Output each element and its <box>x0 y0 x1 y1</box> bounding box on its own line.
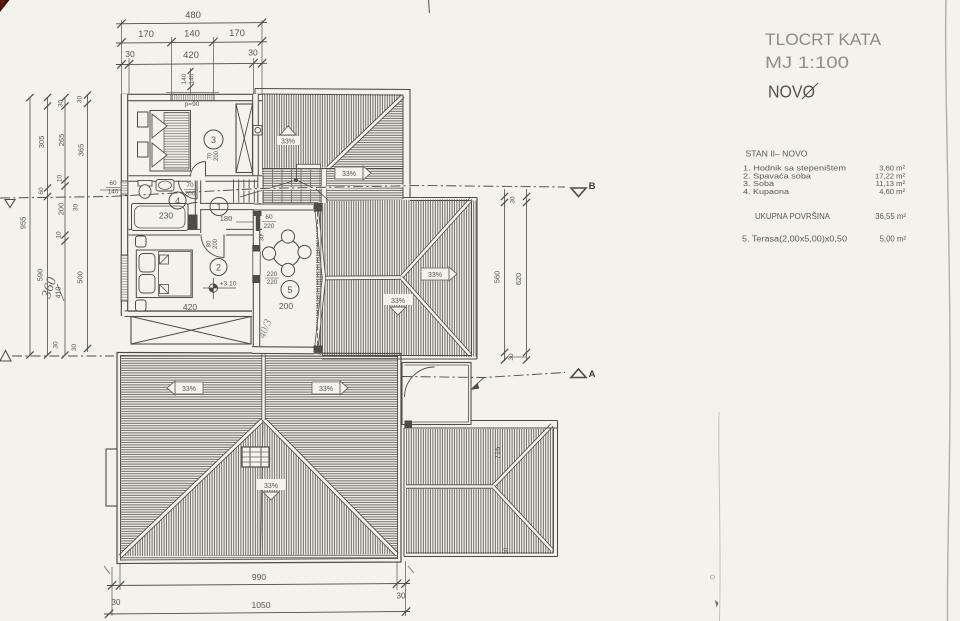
svg-text:STAN II– NOVO: STAN II– NOVO <box>746 150 808 159</box>
svg-text:590: 590 <box>36 269 45 282</box>
svg-text:p=90: p=90 <box>185 101 200 108</box>
svg-text:420: 420 <box>183 50 199 61</box>
svg-text:30: 30 <box>53 341 60 349</box>
svg-text:10: 10 <box>57 175 64 183</box>
svg-text:+3.10: +3.10 <box>219 281 236 288</box>
svg-text:955: 955 <box>19 217 28 230</box>
svg-text:480: 480 <box>185 10 201 21</box>
svg-text:5,00 m²: 5,00 m² <box>880 235 907 244</box>
svg-text:170: 170 <box>138 29 154 40</box>
svg-text:500: 500 <box>76 271 85 284</box>
svg-text:30: 30 <box>510 196 517 204</box>
svg-text:70: 70 <box>186 182 194 189</box>
svg-text:265: 265 <box>57 134 66 147</box>
svg-text:305: 305 <box>37 136 46 149</box>
svg-text:60: 60 <box>265 214 273 221</box>
svg-text:200: 200 <box>57 203 66 216</box>
svg-text:560: 560 <box>493 271 502 284</box>
svg-text:200: 200 <box>213 238 219 249</box>
svg-text:180: 180 <box>220 214 233 223</box>
svg-text:140: 140 <box>184 29 200 40</box>
svg-text:30: 30 <box>248 48 258 58</box>
svg-text:TLOCRT KATA: TLOCRT KATA <box>765 31 881 49</box>
svg-text:33%: 33% <box>391 298 405 305</box>
svg-text:170: 170 <box>229 28 245 39</box>
svg-text:MJ 1:100: MJ 1:100 <box>765 54 849 72</box>
svg-text:230: 230 <box>159 211 173 221</box>
svg-text:60: 60 <box>38 187 45 195</box>
svg-text:33%: 33% <box>264 483 278 490</box>
svg-text:4: 4 <box>175 196 180 206</box>
svg-text:NOVO: NOVO <box>768 82 815 102</box>
svg-text:4. Kupaona: 4. Kupaona <box>743 187 790 196</box>
svg-text:715: 715 <box>493 447 502 460</box>
svg-text:620: 620 <box>514 273 523 286</box>
svg-text:30: 30 <box>58 100 65 108</box>
svg-text:33%: 33% <box>342 171 356 178</box>
svg-text:30: 30 <box>260 235 266 241</box>
svg-text:2: 2 <box>216 263 221 273</box>
svg-text:30: 30 <box>504 547 510 554</box>
svg-text:30: 30 <box>112 598 121 607</box>
svg-text:30: 30 <box>73 204 80 212</box>
svg-text:B: B <box>589 181 596 192</box>
svg-text:33%: 33% <box>428 272 442 279</box>
svg-text:220: 220 <box>267 271 278 278</box>
svg-text:33%: 33% <box>182 386 196 393</box>
svg-text:33%: 33% <box>281 139 295 146</box>
svg-text:36,55 m²: 36,55 m² <box>875 212 906 221</box>
svg-text:5. Terasa(2,00x5,00)x0,50: 5. Terasa(2,00x5,00)x0,50 <box>742 235 848 244</box>
svg-text:10: 10 <box>56 231 63 239</box>
svg-text:1050: 1050 <box>252 600 271 610</box>
svg-text:80: 80 <box>207 240 213 247</box>
svg-text:A: A <box>589 369 596 380</box>
svg-text:220: 220 <box>264 223 275 230</box>
svg-text:990: 990 <box>252 572 266 582</box>
svg-text:4,60 m²: 4,60 m² <box>879 187 905 196</box>
svg-text:30: 30 <box>71 344 78 352</box>
svg-text:3: 3 <box>211 135 216 145</box>
svg-text:420: 420 <box>183 302 197 312</box>
svg-text:200: 200 <box>279 301 293 311</box>
svg-text:365: 365 <box>77 144 86 157</box>
svg-text:200: 200 <box>214 150 220 161</box>
svg-text:140: 140 <box>108 189 119 196</box>
svg-text:220: 220 <box>267 279 278 286</box>
svg-text:30: 30 <box>397 592 406 601</box>
svg-text:30: 30 <box>125 49 135 59</box>
svg-text:1: 1 <box>216 202 221 212</box>
svg-text:140: 140 <box>189 73 196 84</box>
svg-text:5: 5 <box>287 285 292 295</box>
svg-text:70: 70 <box>208 152 214 159</box>
svg-text:30: 30 <box>77 96 84 104</box>
svg-text:UKUPNA POVRŠINA: UKUPNA POVRŠINA <box>755 212 831 221</box>
svg-text:140: 140 <box>181 73 188 84</box>
svg-text:33%: 33% <box>319 386 333 393</box>
svg-text:60: 60 <box>109 180 117 187</box>
